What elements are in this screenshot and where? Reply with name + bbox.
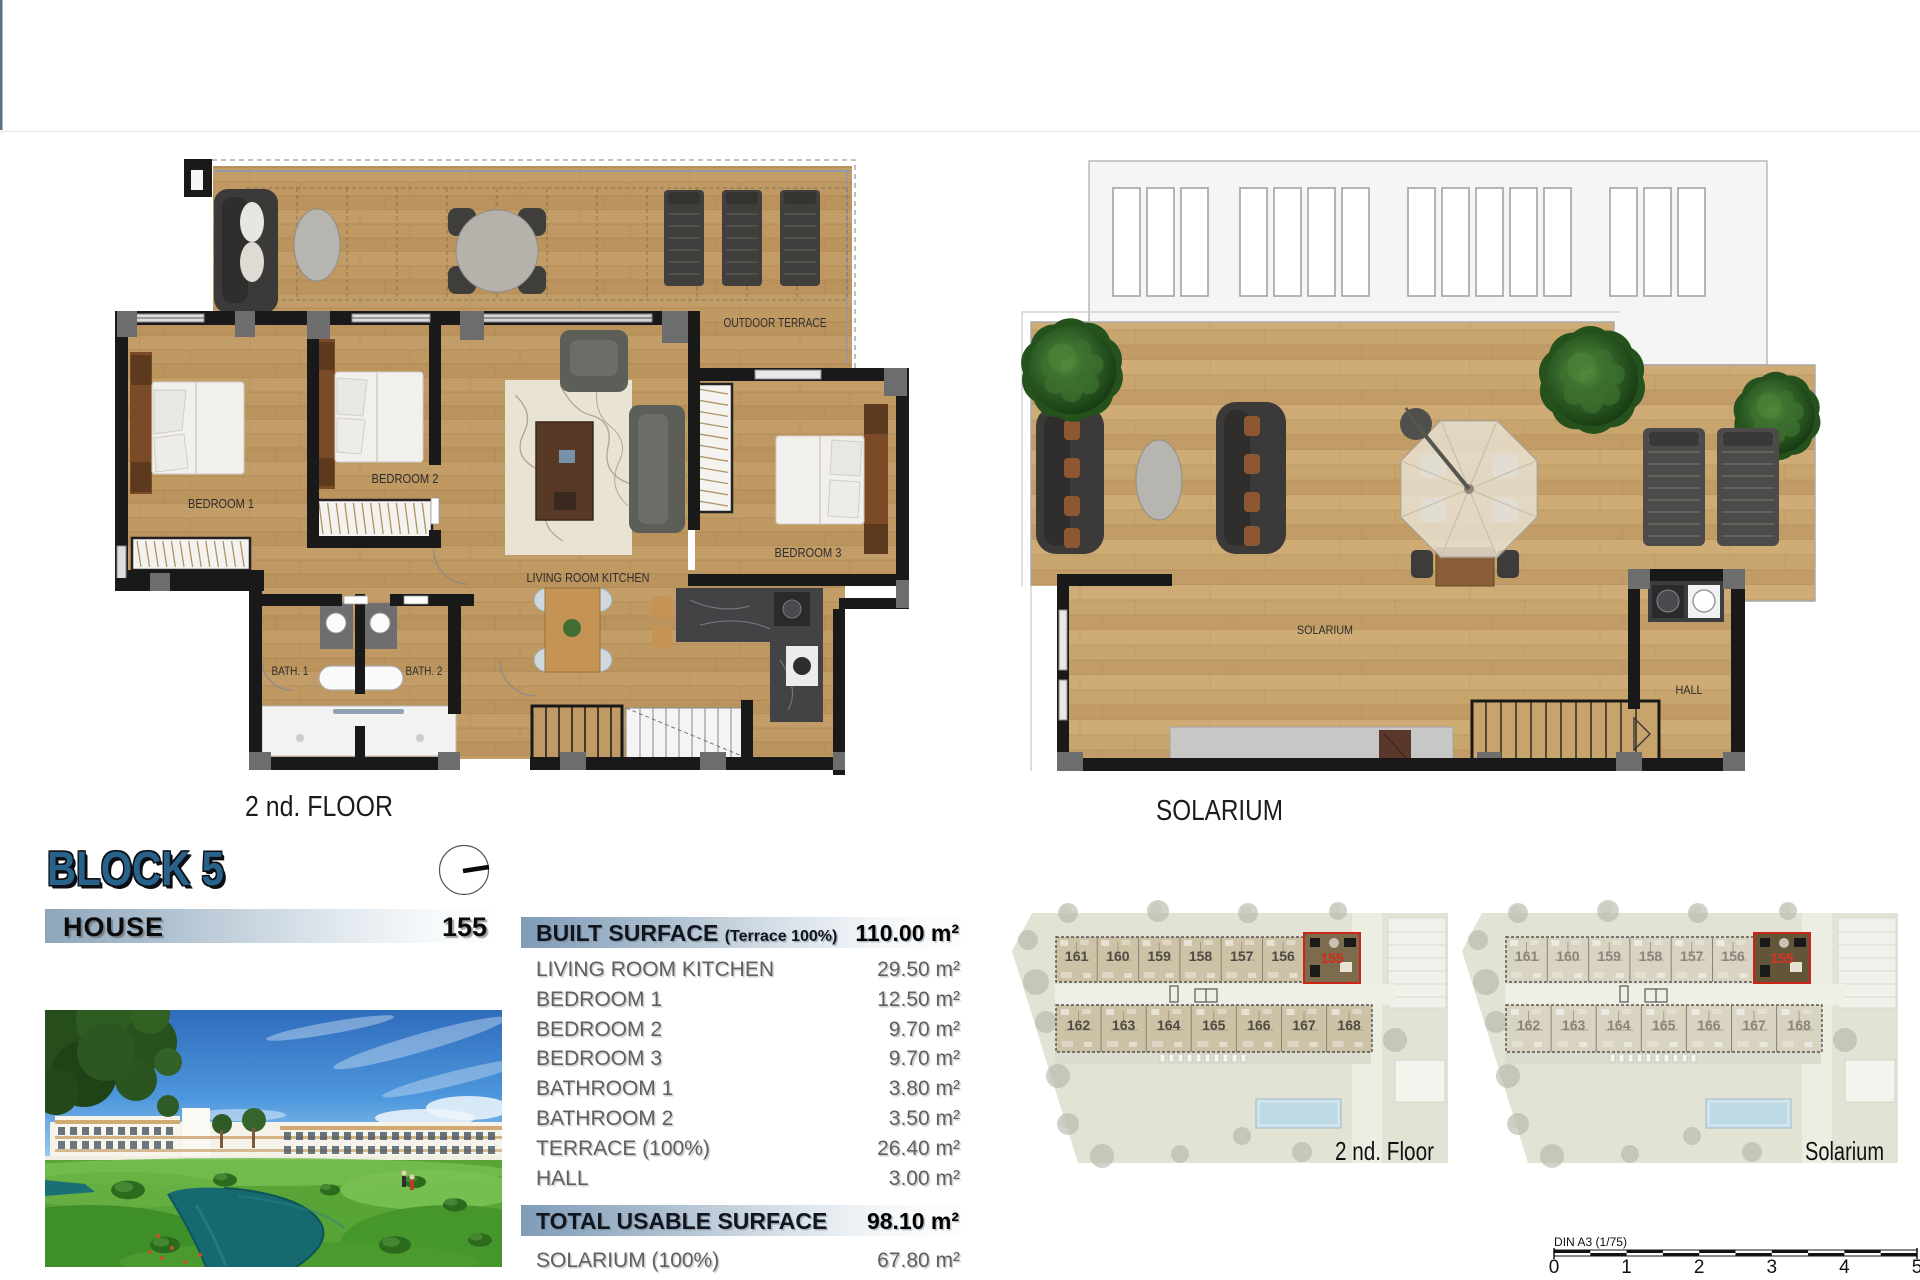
svg-text:155: 155 xyxy=(1320,950,1344,966)
svg-text:162: 162 xyxy=(1517,1017,1541,1033)
svg-text:1: 1 xyxy=(1621,1257,1632,1278)
svg-text:168: 168 xyxy=(1787,1017,1811,1033)
svg-text:BEDROOM 3: BEDROOM 3 xyxy=(775,545,842,560)
svg-text:163: 163 xyxy=(1562,1017,1586,1033)
svg-text:159: 159 xyxy=(1148,948,1172,964)
svg-text:164: 164 xyxy=(1157,1017,1181,1033)
svg-text:BEDROOM 2: BEDROOM 2 xyxy=(372,471,439,486)
svg-text:OUTDOOR TERRACE: OUTDOOR TERRACE xyxy=(724,315,827,330)
svg-text:Solarium: Solarium xyxy=(1805,1136,1884,1166)
svg-text:168: 168 xyxy=(1337,1017,1361,1033)
svg-text:163: 163 xyxy=(1112,1017,1136,1033)
svg-text:4: 4 xyxy=(1839,1257,1850,1278)
svg-text:2 nd. FLOOR: 2 nd. FLOOR xyxy=(245,791,393,823)
svg-text:166: 166 xyxy=(1697,1017,1721,1033)
svg-text:165: 165 xyxy=(1652,1017,1676,1033)
svg-text:BEDROOM 1: BEDROOM 1 xyxy=(188,496,254,511)
svg-text:5: 5 xyxy=(1912,1257,1920,1278)
svg-text:158: 158 xyxy=(1189,948,1213,964)
svg-text:156: 156 xyxy=(1721,948,1745,964)
svg-text:2: 2 xyxy=(1694,1257,1705,1278)
svg-text:157: 157 xyxy=(1680,948,1704,964)
svg-text:160: 160 xyxy=(1556,948,1580,964)
svg-text:164: 164 xyxy=(1607,1017,1631,1033)
svg-text:BATH. 1: BATH. 1 xyxy=(272,664,309,678)
svg-text:0: 0 xyxy=(1549,1257,1560,1278)
svg-text:157: 157 xyxy=(1230,948,1254,964)
svg-text:167: 167 xyxy=(1742,1017,1766,1033)
svg-text:2 nd. Floor: 2 nd. Floor xyxy=(1335,1136,1434,1166)
svg-text:162: 162 xyxy=(1067,1017,1091,1033)
svg-text:158: 158 xyxy=(1639,948,1663,964)
svg-text:SOLARIUM: SOLARIUM xyxy=(1297,623,1353,637)
svg-text:DIN A3 (1/75): DIN A3 (1/75) xyxy=(1554,1237,1627,1249)
svg-text:HALL: HALL xyxy=(1676,683,1703,697)
svg-text:LIVING ROOM KITCHEN: LIVING ROOM KITCHEN xyxy=(527,570,650,585)
svg-text:159: 159 xyxy=(1598,948,1622,964)
svg-text:167: 167 xyxy=(1292,1017,1316,1033)
svg-text:155: 155 xyxy=(1770,950,1794,966)
svg-text:161: 161 xyxy=(1065,948,1089,964)
svg-text:156: 156 xyxy=(1271,948,1295,964)
svg-text:3: 3 xyxy=(1767,1257,1778,1278)
svg-text:BATH. 2: BATH. 2 xyxy=(406,664,443,678)
svg-text:160: 160 xyxy=(1106,948,1130,964)
svg-text:165: 165 xyxy=(1202,1017,1226,1033)
svg-text:166: 166 xyxy=(1247,1017,1271,1033)
svg-text:SOLARIUM: SOLARIUM xyxy=(1156,795,1283,827)
svg-text:161: 161 xyxy=(1515,948,1539,964)
